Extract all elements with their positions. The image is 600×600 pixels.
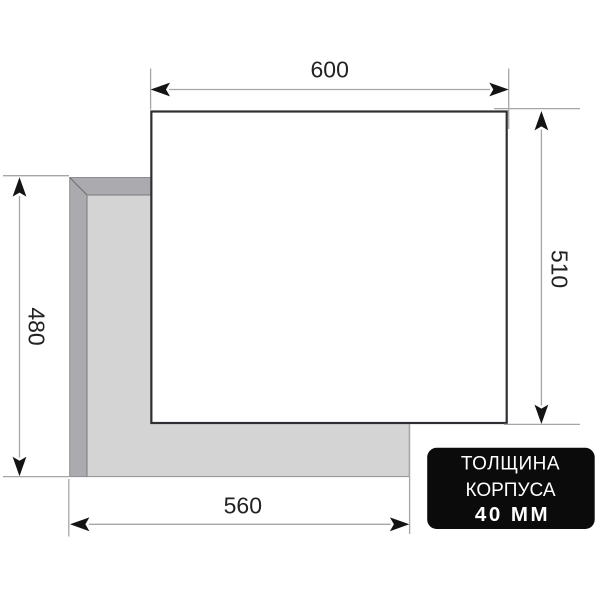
svg-text:560: 560 [224,493,262,519]
svg-text:40 ММ: 40 ММ [475,503,550,526]
svg-text:ТОЛЩИНА: ТОЛЩИНА [461,453,560,474]
svg-text:480: 480 [24,307,50,345]
svg-text:КОРПУСА: КОРПУСА [465,480,555,501]
svg-text:600: 600 [311,57,349,83]
svg-text:510: 510 [547,250,573,288]
